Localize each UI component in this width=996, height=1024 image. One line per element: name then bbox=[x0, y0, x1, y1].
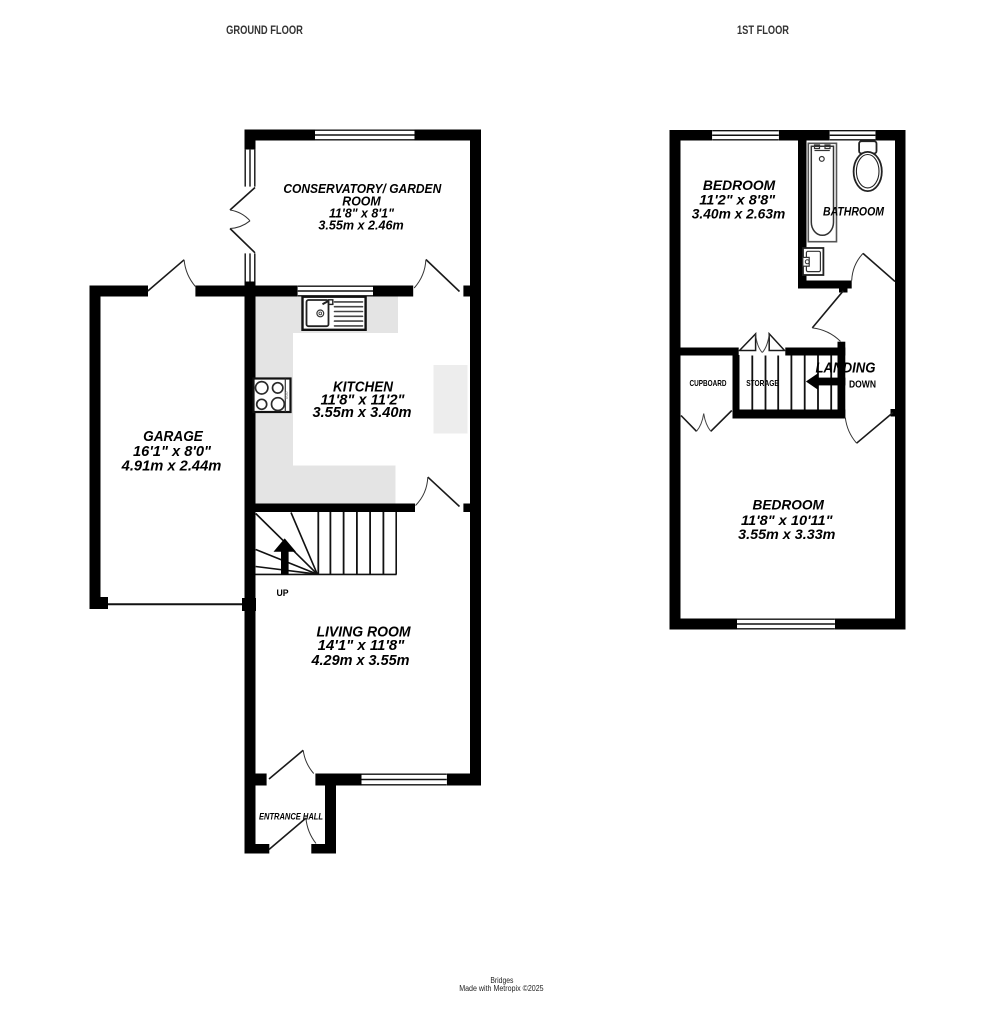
svg-text:Made with Metropix ©2025: Made with Metropix ©2025 bbox=[459, 984, 544, 993]
svg-text:14'1" x 11'8": 14'1" x 11'8" bbox=[318, 638, 406, 654]
svg-text:11'2" x 8'8": 11'2" x 8'8" bbox=[699, 193, 776, 208]
svg-text:CUPBOARD: CUPBOARD bbox=[690, 378, 727, 388]
svg-text:3.55m x 3.33m: 3.55m x 3.33m bbox=[738, 526, 835, 542]
svg-text:4.29m x 3.55m: 4.29m x 3.55m bbox=[311, 653, 410, 669]
svg-text:BEDROOM: BEDROOM bbox=[752, 497, 824, 513]
svg-text:GROUND FLOOR: GROUND FLOOR bbox=[226, 25, 303, 37]
svg-text:3.40m x 2.63m: 3.40m x 2.63m bbox=[692, 206, 786, 221]
svg-text:3.55m x 3.40m: 3.55m x 3.40m bbox=[313, 405, 412, 421]
svg-text:LANDING: LANDING bbox=[816, 361, 876, 377]
svg-text:UP: UP bbox=[276, 588, 289, 599]
svg-text:BATHROOM: BATHROOM bbox=[823, 205, 885, 219]
svg-text:600: 600 bbox=[284, 391, 289, 399]
svg-text:STORAGE: STORAGE bbox=[746, 378, 779, 388]
svg-text:DOWN: DOWN bbox=[849, 379, 876, 390]
svg-text:BEDROOM: BEDROOM bbox=[703, 178, 776, 193]
svg-text:1ST FLOOR: 1ST FLOOR bbox=[737, 25, 790, 37]
svg-text:ENTRANCE HALL: ENTRANCE HALL bbox=[259, 811, 323, 821]
svg-text:3.55m x 2.46m: 3.55m x 2.46m bbox=[318, 218, 404, 233]
svg-text:4.91m x 2.44m: 4.91m x 2.44m bbox=[121, 459, 222, 475]
svg-text:GARAGE: GARAGE bbox=[143, 429, 204, 445]
